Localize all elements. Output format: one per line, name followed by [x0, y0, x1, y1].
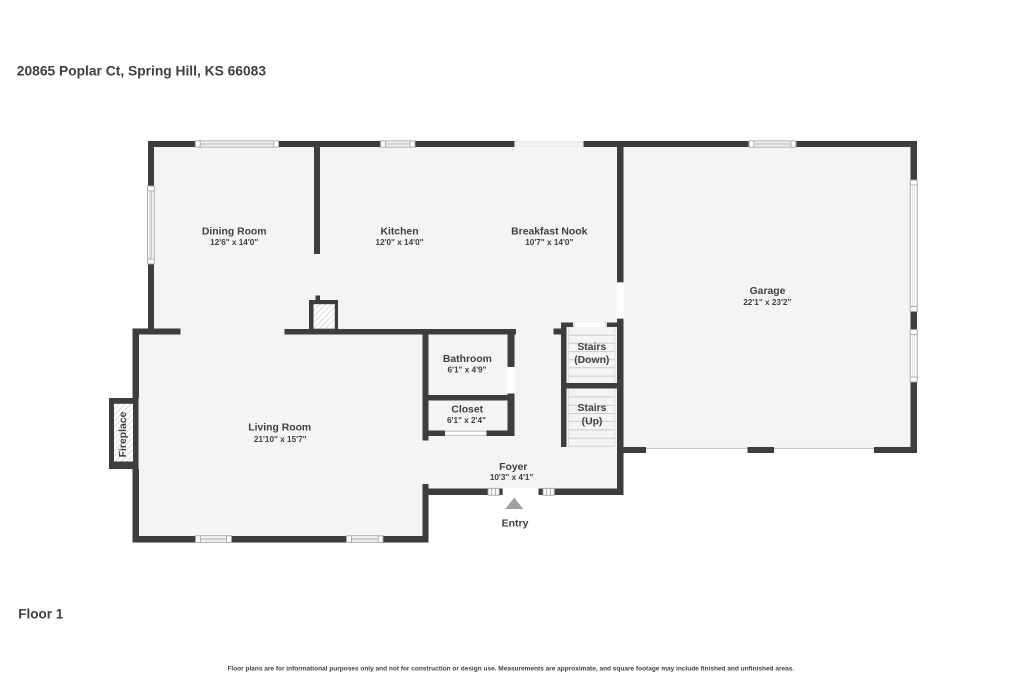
svg-text:Foyer: Foyer — [499, 462, 527, 473]
svg-text:Stairs: Stairs — [577, 342, 606, 353]
svg-text:22'1" x 23'2": 22'1" x 23'2" — [743, 298, 791, 307]
svg-text:6'1" x 2'4": 6'1" x 2'4" — [447, 416, 486, 425]
svg-text:Bathroom: Bathroom — [443, 354, 492, 365]
svg-text:(Up): (Up) — [582, 417, 603, 428]
svg-text:21'10" x 15'7": 21'10" x 15'7" — [254, 435, 307, 444]
svg-text:Dining Room: Dining Room — [202, 227, 267, 238]
svg-text:10'7" x 14'0": 10'7" x 14'0" — [525, 238, 573, 247]
svg-text:Fireplace: Fireplace — [118, 411, 129, 457]
svg-text:20865 Poplar Ct, Spring Hill,: 20865 Poplar Ct, Spring Hill, KS 66083 — [17, 64, 267, 79]
svg-text:Breakfast Nook: Breakfast Nook — [511, 227, 587, 238]
svg-text:10'3" x 4'1": 10'3" x 4'1" — [490, 473, 534, 482]
svg-text:Stairs: Stairs — [578, 403, 607, 414]
svg-text:Living Room: Living Room — [248, 422, 311, 433]
svg-text:Entry: Entry — [502, 518, 529, 530]
svg-text:Floor 1: Floor 1 — [18, 607, 63, 622]
svg-text:12'6" x 14'0": 12'6" x 14'0" — [210, 238, 258, 247]
svg-text:Closet: Closet — [451, 404, 483, 415]
svg-text:Garage: Garage — [750, 286, 786, 297]
svg-text:6'1" x 4'9": 6'1" x 4'9" — [448, 365, 487, 374]
svg-text:(Down): (Down) — [574, 355, 609, 366]
svg-text:Kitchen: Kitchen — [380, 227, 418, 238]
svg-text:12'0" x 14'0": 12'0" x 14'0" — [375, 238, 423, 247]
svg-text:Floor plans are for informatio: Floor plans are for informational purpos… — [227, 666, 794, 673]
